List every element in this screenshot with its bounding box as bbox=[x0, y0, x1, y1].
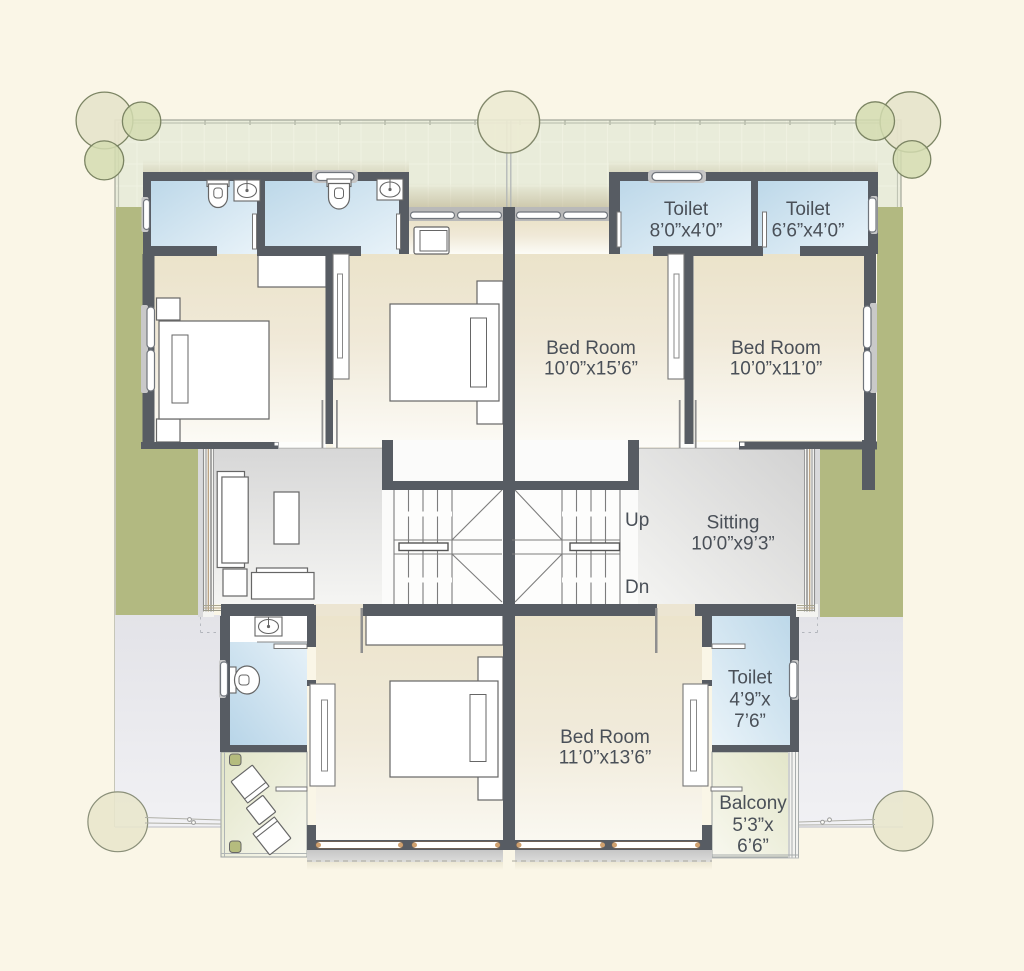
svg-text:5’3”x: 5’3”x bbox=[732, 815, 774, 836]
svg-text:Bed Room: Bed Room bbox=[560, 727, 650, 748]
svg-text:10’0”x11’0”: 10’0”x11’0” bbox=[730, 359, 823, 380]
svg-text:Toilet: Toilet bbox=[728, 668, 773, 689]
svg-text:11’0”x13’6”: 11’0”x13’6” bbox=[559, 748, 652, 769]
svg-text:Dn: Dn bbox=[625, 577, 649, 598]
svg-text:6’6”: 6’6” bbox=[737, 836, 769, 857]
svg-text:Up: Up bbox=[625, 510, 649, 531]
svg-text:Balcony: Balcony bbox=[719, 793, 787, 814]
svg-text:7’6”: 7’6” bbox=[734, 711, 766, 732]
svg-text:Toilet: Toilet bbox=[664, 199, 709, 220]
svg-text:Bed Room: Bed Room bbox=[731, 338, 821, 359]
svg-text:4’9”x: 4’9”x bbox=[729, 690, 771, 711]
svg-text:10’0”x9’3”: 10’0”x9’3” bbox=[691, 534, 774, 555]
svg-text:10’0”x15’6”: 10’0”x15’6” bbox=[544, 359, 638, 380]
svg-text:8’0”x4’0”: 8’0”x4’0” bbox=[650, 221, 723, 242]
svg-text:Bed Room: Bed Room bbox=[546, 338, 636, 359]
svg-text:6’6”x4’0”: 6’6”x4’0” bbox=[772, 221, 845, 242]
svg-text:Toilet: Toilet bbox=[786, 199, 831, 220]
svg-text:Sitting: Sitting bbox=[707, 513, 760, 534]
